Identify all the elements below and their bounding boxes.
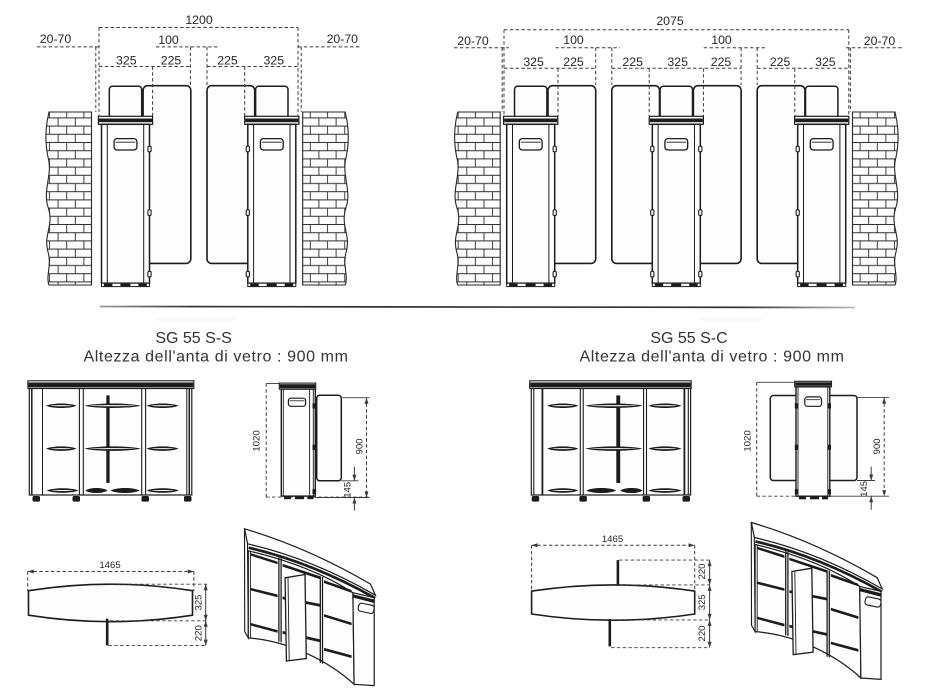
svg-text:325: 325 (116, 54, 137, 68)
svg-text:2075: 2075 (656, 14, 684, 28)
svg-text:325: 325 (815, 55, 836, 69)
svg-text:325: 325 (193, 594, 204, 610)
svg-text:1465: 1465 (99, 560, 120, 571)
svg-text:225: 225 (217, 54, 238, 68)
svg-text:SG 55 S-S: SG 55 S-S (155, 330, 231, 347)
svg-text:325: 325 (667, 55, 688, 69)
svg-text:1020: 1020 (252, 430, 263, 451)
svg-text:1020: 1020 (743, 430, 754, 451)
svg-text:225: 225 (622, 55, 643, 69)
svg-text:20-70: 20-70 (327, 32, 359, 46)
svg-text:325: 325 (264, 54, 285, 68)
svg-text:220: 220 (697, 625, 708, 641)
svg-text:100: 100 (563, 33, 584, 47)
svg-text:900: 900 (355, 438, 366, 454)
svg-text:20-70: 20-70 (40, 32, 72, 46)
svg-text:900: 900 (872, 438, 883, 454)
svg-text:225: 225 (563, 55, 584, 69)
svg-text:145: 145 (859, 481, 870, 497)
svg-text:1200: 1200 (185, 13, 213, 27)
svg-text:20-70: 20-70 (457, 34, 489, 48)
svg-text:220: 220 (193, 625, 204, 641)
svg-text:100: 100 (158, 33, 179, 47)
svg-text:225: 225 (161, 54, 182, 68)
svg-text:220: 220 (697, 563, 708, 579)
svg-text:1465: 1465 (602, 534, 623, 545)
svg-text:325: 325 (697, 594, 708, 610)
svg-text:325: 325 (523, 55, 544, 69)
svg-text:Altezza dell'anta di vetro : 9: Altezza dell'anta di vetro : 900 mm (83, 349, 348, 366)
svg-text:Altezza dell'anta di vetro : 9: Altezza dell'anta di vetro : 900 mm (579, 349, 844, 366)
svg-text:145: 145 (343, 482, 354, 498)
svg-text:225: 225 (770, 55, 791, 69)
svg-text:100: 100 (711, 33, 732, 47)
svg-text:SG 55 S-C: SG 55 S-C (650, 330, 727, 347)
svg-text:225: 225 (711, 55, 732, 69)
svg-text:20-70: 20-70 (864, 34, 896, 48)
